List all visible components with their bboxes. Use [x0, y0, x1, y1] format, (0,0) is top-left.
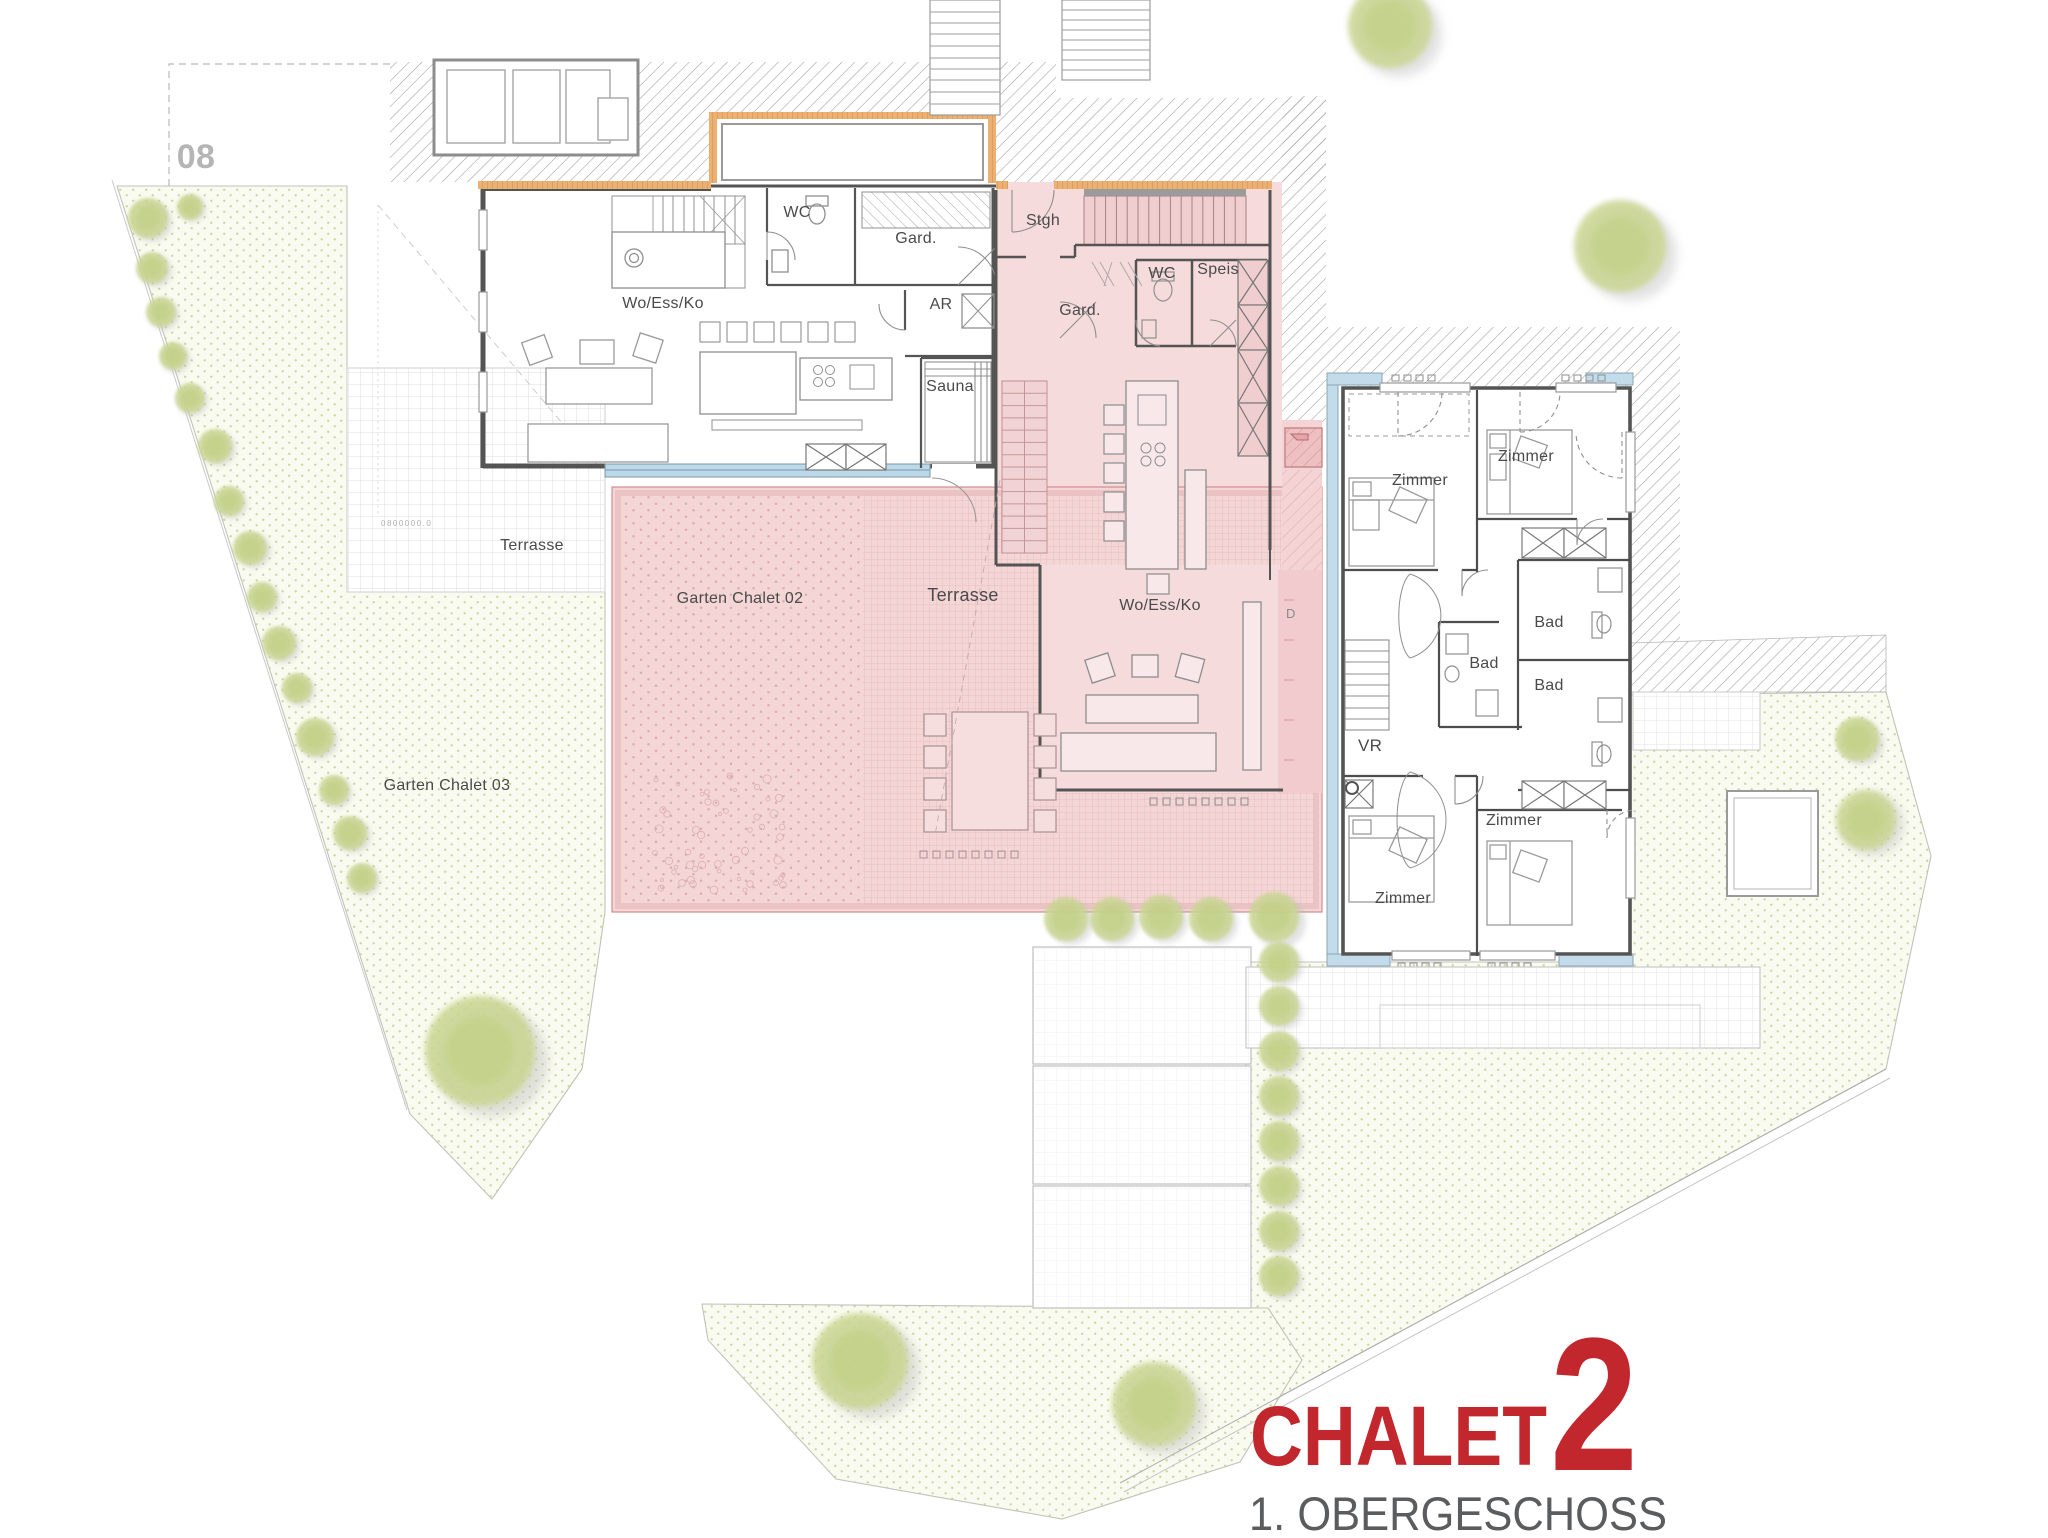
svg-text:WC: WC — [1148, 265, 1175, 282]
svg-text:1. OBERGESCHOSS: 1. OBERGESCHOSS — [1249, 1487, 1667, 1538]
svg-text:Sauna: Sauna — [926, 378, 974, 395]
svg-text:Terrasse: Terrasse — [500, 537, 564, 554]
svg-text:CHALET: CHALET — [1250, 1389, 1547, 1483]
svg-text:AR: AR — [930, 296, 953, 313]
svg-text:VR: VR — [1358, 736, 1382, 755]
svg-text:0800000.0: 0800000.0 — [381, 519, 432, 528]
svg-text:Gard.: Gard. — [1059, 302, 1101, 319]
svg-text:08: 08 — [177, 138, 215, 176]
svg-text:Garten Chalet 02: Garten Chalet 02 — [677, 590, 804, 607]
svg-text:Bad: Bad — [1534, 614, 1563, 631]
svg-text:Wo/Ess/Ko: Wo/Ess/Ko — [1119, 597, 1201, 614]
svg-text:2: 2 — [1550, 1299, 1638, 1511]
svg-text:Bad: Bad — [1534, 677, 1563, 694]
svg-text:Zimmer: Zimmer — [1392, 472, 1448, 489]
svg-text:Speis: Speis — [1197, 261, 1239, 278]
svg-text:Wo/Ess/Ko: Wo/Ess/Ko — [622, 295, 704, 312]
svg-text:Garten Chalet 03: Garten Chalet 03 — [384, 777, 511, 794]
svg-text:D: D — [1286, 606, 1295, 621]
svg-text:Terrasse: Terrasse — [927, 585, 998, 605]
svg-text:Zimmer: Zimmer — [1486, 812, 1542, 829]
svg-text:Bad: Bad — [1469, 655, 1498, 672]
svg-text:WC: WC — [783, 204, 810, 221]
svg-text:Gard.: Gard. — [895, 230, 937, 247]
svg-text:Zimmer: Zimmer — [1498, 448, 1554, 465]
svg-text:Stgh: Stgh — [1026, 212, 1060, 229]
svg-text:Zimmer: Zimmer — [1375, 890, 1431, 907]
